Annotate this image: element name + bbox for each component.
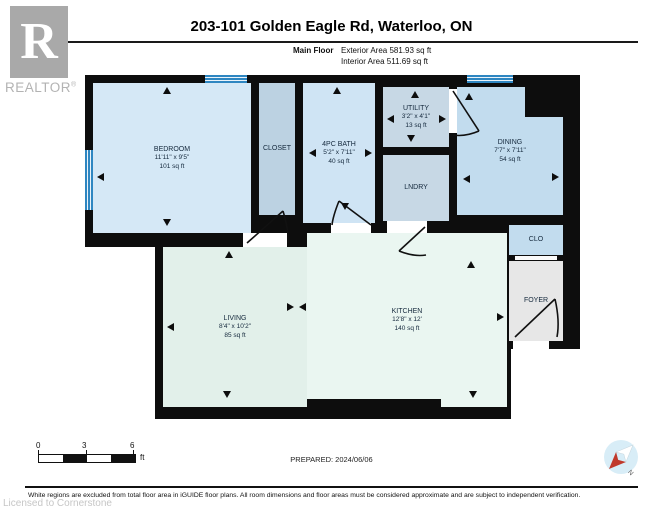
room-dims: 7'7" x 7'11" <box>494 147 526 155</box>
room-dims: 3'2" x 4'1" <box>402 113 430 121</box>
page-title: 203-101 Golden Eagle Rd, Waterloo, ON <box>0 18 663 35</box>
direction-arrow-icon <box>411 91 419 98</box>
room-clo: CLO <box>509 225 563 255</box>
direction-arrow-icon <box>167 323 174 331</box>
direction-arrow-icon <box>387 115 394 123</box>
room-bedroom: BEDROOM11'11" x 9'5"101 sq ft <box>93 83 251 233</box>
room-kitchen: KITCHEN12'8" x 12'140 sq ft <box>307 233 507 407</box>
room-dims: 5'2" x 7'11" <box>322 149 356 157</box>
door-opening-entry <box>513 341 549 349</box>
direction-arrow-icon <box>223 391 231 398</box>
room-closet: CLOSET <box>259 83 295 215</box>
direction-arrow-icon <box>469 391 477 398</box>
scale-tick-label: 3 <box>82 441 86 450</box>
realtor-logo-text: REALTOR <box>5 80 71 95</box>
room-laundry: LNDRY <box>383 155 449 221</box>
direction-arrow-icon <box>497 313 504 321</box>
license-text: Licensed to Cornerstone <box>3 498 112 509</box>
direction-arrow-icon <box>463 175 470 183</box>
direction-arrow-icon <box>467 261 475 268</box>
direction-arrow-icon <box>333 87 341 94</box>
door-opening-dining <box>449 89 457 133</box>
room-dims: 11'11" x 9'5" <box>154 154 190 162</box>
room-name: 4PC BATH <box>322 140 356 149</box>
room-foyer: FOYER <box>509 261 563 341</box>
direction-arrow-icon <box>287 303 294 311</box>
prepared-date: PREPARED: 2024/06/06 <box>0 455 663 464</box>
registered-mark: ® <box>71 82 77 89</box>
direction-arrow-icon <box>407 135 415 142</box>
header-divider <box>30 41 638 43</box>
direction-arrow-icon <box>341 203 349 210</box>
direction-arrow-icon <box>552 173 559 181</box>
door-opening-laundry <box>387 221 427 233</box>
wall-kitchen-jut <box>307 399 441 409</box>
door-opening-bedroom <box>243 233 287 247</box>
room-area: 40 sq ft <box>322 158 356 166</box>
direction-arrow-icon <box>299 303 306 311</box>
realtor-logo-word: REALTOR® <box>5 80 77 95</box>
compass-icon: N <box>602 438 640 476</box>
room-name: FOYER <box>524 296 548 305</box>
room-name: CLO <box>529 235 543 244</box>
floorplan: BEDROOM11'11" x 9'5"101 sq ft CLOSET 4PC… <box>85 75 580 425</box>
room-name: LIVING <box>219 314 251 323</box>
room-area: 140 sq ft <box>392 325 423 333</box>
room-name: KITCHEN <box>392 307 423 316</box>
realtor-logo-icon: R <box>10 6 68 78</box>
wall-dining-corner <box>525 75 580 117</box>
footer-divider <box>25 486 638 488</box>
direction-arrow-icon <box>309 149 316 157</box>
direction-arrow-icon <box>163 87 171 94</box>
direction-arrow-icon <box>225 251 233 258</box>
direction-arrow-icon <box>163 219 171 226</box>
scale-tick-label: 6 <box>130 441 134 450</box>
direction-arrow-icon <box>365 149 372 157</box>
interior-area: Interior Area 511.69 sq ft <box>341 57 428 66</box>
door-opening-bath <box>331 223 371 233</box>
room-name: LNDRY <box>404 183 428 192</box>
room-name: BEDROOM <box>154 145 190 154</box>
direction-arrow-icon <box>97 173 104 181</box>
room-dims: 12'8" x 12' <box>392 316 423 324</box>
door-opening-clo <box>515 256 557 260</box>
direction-arrow-icon <box>439 115 446 123</box>
room-area: 13 sq ft <box>402 122 430 130</box>
room-name: DINING <box>494 138 526 147</box>
room-name: UTILITY <box>402 104 430 113</box>
floor-label: Main Floor <box>293 46 333 55</box>
room-area: 54 sq ft <box>494 156 526 164</box>
room-area: 101 sq ft <box>154 163 190 171</box>
floorplan-page: R REALTOR® 203-101 Golden Eagle Rd, Wate… <box>0 0 663 512</box>
room-area: 85 sq ft <box>219 332 251 340</box>
window-icon <box>205 75 247 83</box>
scale-tick-label: 0 <box>36 441 40 450</box>
disclaimer-text: White regions are excluded from total fl… <box>28 492 638 499</box>
direction-arrow-icon <box>465 93 473 100</box>
exterior-area: Exterior Area 581.93 sq ft <box>341 46 431 55</box>
room-living: LIVING8'4" x 10'2"85 sq ft <box>163 247 307 407</box>
window-icon <box>85 150 93 210</box>
room-name: CLOSET <box>263 144 291 153</box>
room-dims: 8'4" x 10'2" <box>219 323 251 331</box>
window-icon <box>467 75 513 83</box>
